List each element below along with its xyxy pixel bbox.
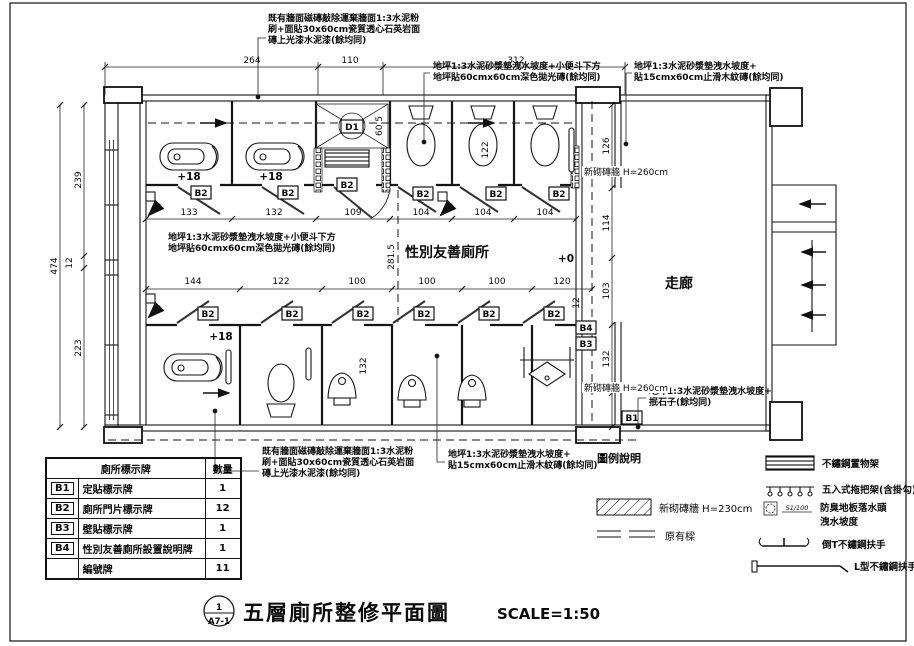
tag-b2-label: B2 <box>489 190 502 200</box>
sign-table-header-name: 廁所標示牌 <box>46 458 205 479</box>
level-mark: +0 <box>558 253 574 265</box>
room-label-corridor: 走廊 <box>665 275 693 292</box>
legend-title: 圖例說明 <box>597 451 641 465</box>
dim-stall: 100 <box>418 277 435 287</box>
table-row: B1 定貼標示牌 1 <box>46 479 241 499</box>
dim-top-110: 110 <box>341 56 358 66</box>
dim-right: 103 <box>602 282 612 299</box>
sign-qty: 1 <box>205 519 241 539</box>
tag-b2-label: B2 <box>340 181 353 191</box>
tag-b2-label: B2 <box>552 190 565 200</box>
sign-qty: 11 <box>205 559 241 580</box>
sign-name: 性別友善廁所設置說明牌 <box>78 539 205 559</box>
l-grab-bar-symbol <box>752 561 848 572</box>
dim-misc: 60.5 <box>375 116 385 136</box>
dim-left-474: 474 <box>50 257 60 274</box>
tag-b3: B3 <box>51 522 74 535</box>
dim-left-239: 239 <box>74 171 84 188</box>
note-floor-dark: 地坪貼60cmx60cm深色拋光磚(餘均同) <box>433 71 601 83</box>
dim-stall: 100 <box>348 277 365 287</box>
dim-misc: 281.5 <box>387 244 397 270</box>
grab-bar <box>226 350 231 384</box>
tag-b2-label: B2 <box>201 310 214 320</box>
legend-beam-label: 原有樑 <box>665 530 695 543</box>
level-mark: +18 <box>209 331 232 343</box>
t-grab-bar-symbol <box>759 538 809 546</box>
tag-b2: B2 <box>51 502 74 515</box>
toilet-symbol <box>267 364 295 417</box>
sign-qty: 12 <box>205 499 241 519</box>
dim-misc: 132 <box>359 357 369 374</box>
dim-right: 114 <box>602 214 612 231</box>
legend-mop-rack-label: 五入式拖把架(含掛勾) <box>822 484 914 496</box>
note-wall-spec: 刷+面貼30x60cm瓷質透心石英岩面 <box>268 23 420 35</box>
stainless-shelf-symbol <box>325 150 369 167</box>
note-floor-dark: 地坪1:3水泥砂漿墊洩水坡度+小便斗下方 <box>433 60 601 72</box>
tag-b2-label: B2 <box>356 310 369 320</box>
tag-b4: B4 <box>51 542 74 555</box>
dim-stall: 100 <box>488 277 505 287</box>
tag-b3: B3 <box>576 337 596 350</box>
note-floor-dark: 地坪貼60cmx60cm深色拋光磚(餘均同) <box>168 242 336 254</box>
sign-name: 壁貼標示牌 <box>78 519 205 539</box>
tag-b2-label: B2 <box>547 310 560 320</box>
table-row: B2 廁所門片標示牌 12 <box>46 499 241 519</box>
tag-b4: B4 <box>576 321 596 334</box>
basin-symbol <box>328 373 356 405</box>
dim-misc: 122 <box>481 141 491 158</box>
toilet-symbol <box>407 106 435 166</box>
level-mark: +18 <box>259 171 282 183</box>
note-wall-spec: 磚上光漆水泥漆(餘均同) <box>268 34 366 46</box>
level-mark: +18 <box>177 171 200 183</box>
balcony-railing <box>772 185 836 345</box>
tag-d1-label: D1 <box>345 123 359 133</box>
dim-stall: 120 <box>553 277 570 287</box>
detail-number: 1 <box>216 603 222 613</box>
sign-schedule-table: 廁所標示牌 數量 B1 定貼標示牌 1 B2 廁所門片標示牌 12 B3 壁貼標… <box>45 457 242 580</box>
basin-symbol <box>398 375 426 407</box>
legend-t-grab-label: 倒T不鏽鋼扶手 <box>821 539 886 551</box>
dim-right: 132 <box>602 350 612 367</box>
toilet-symbol <box>531 106 559 166</box>
note-floor-wood: 貼15cmx60cm止滑木紋磚(餘均同) <box>447 459 598 471</box>
dim-stall: 133 <box>180 208 197 218</box>
mop-sink-symbol <box>520 347 574 386</box>
tag-b4-label: B4 <box>579 324 592 334</box>
table-row: 編號牌 11 <box>46 559 241 580</box>
note-wall-spec: 既有牆面磁磚敲除運棄牆面1:3水泥粉 <box>268 12 419 24</box>
dim-misc: 12 <box>572 297 582 308</box>
dim-stall: 104 <box>536 208 553 218</box>
title-block: 1 A7-1 五層廁所整修平面圖 SCALE=1:50 <box>204 596 600 627</box>
tag-b1: B1 <box>51 482 74 495</box>
legend-drain-label: 防臭地板落水頭 <box>820 502 887 514</box>
sign-table-header-qty: 數量 <box>205 458 241 479</box>
dim-stall: 144 <box>184 277 201 287</box>
tag-b2-label: B2 <box>417 310 430 320</box>
dim-stall: 132 <box>265 208 282 218</box>
dim-left-12: 12 <box>65 257 75 268</box>
note-new-wall-260: 新砌磚牆 H=260cm <box>584 166 668 178</box>
tag-b2-label: B2 <box>194 189 207 199</box>
legend-shelf-label: 不鏽鋼置物架 <box>822 458 880 470</box>
new-wall-hatch-swatch <box>597 499 651 515</box>
grab-bar <box>569 128 574 172</box>
dim-stall: 109 <box>344 208 361 218</box>
sign-name: 編號牌 <box>78 559 205 580</box>
legend-new-wall-label: 新砌磚牆 H=230cm <box>659 502 752 515</box>
note-floor-wood: 地坪1:3水泥砂漿墊洩水坡度+ <box>634 60 757 72</box>
note-floor-wood: 地坪1:3水泥砂漿墊洩水坡度+ <box>448 448 571 460</box>
tag-b3-label: B3 <box>579 340 592 350</box>
dim-left-223: 223 <box>74 339 84 356</box>
drawing-scale: SCALE=1:50 <box>497 605 600 623</box>
drawing-title: 五層廁所整修平面圖 <box>243 601 450 625</box>
shelf-swatch <box>766 456 814 470</box>
sheet-reference: A7-1 <box>208 617 230 627</box>
sign-name: 定貼標示牌 <box>78 479 205 499</box>
dim-stall: 122 <box>272 277 289 287</box>
note-wall-spec: 既有牆面磁磚敲除運棄牆面1:3水泥粉 <box>262 445 413 457</box>
grab-bar <box>306 348 311 380</box>
legend: 圖例說明 新砌磚牆 H=230cm 原有樑 不鏽鋼置物架 五入式拖把架(含掛勾)… <box>597 451 914 573</box>
sign-name: 廁所門片標示牌 <box>78 499 205 519</box>
note-new-wall-260: 新砌磚牆 H=260cm <box>584 382 668 394</box>
table-row: B3 壁貼標示牌 1 <box>46 519 241 539</box>
legend-drain-label2: 洩水坡度 <box>820 516 859 528</box>
tag-b2-label: B2 <box>281 189 294 199</box>
door-swings <box>177 187 560 323</box>
note-floor-wood: 貼15cmx60cm止滑木紋磚(餘均同) <box>633 71 784 83</box>
legend-slope-code: S1/100 <box>786 504 809 512</box>
note-wall-spec: 磚上光漆水泥漆(餘均同) <box>262 467 360 479</box>
tag-b2-label: B2 <box>285 310 298 320</box>
table-row: B4 性別友善廁所設置說明牌 1 <box>46 539 241 559</box>
note-floor-pebble: 抿石子(餘均同) <box>649 396 711 408</box>
note-floor-dark: 地坪1:3水泥砂漿墊洩水坡度+小便斗下方 <box>168 231 336 243</box>
sign-qty: 1 <box>205 539 241 559</box>
mop-rack-symbol <box>766 487 814 496</box>
dim-stall: 104 <box>474 208 491 218</box>
tag-b1-label: B1 <box>625 414 638 424</box>
fixtures <box>146 104 836 417</box>
legend-l-grab-label: L型不鏽鋼扶手 <box>854 561 914 573</box>
room-label-gender-friendly: 性別友善廁所 <box>405 244 489 261</box>
tag-b1: B1 <box>622 411 642 424</box>
note-wall-spec: 刷+面貼30x60cm瓷質透心石英岩面 <box>262 456 414 468</box>
drawing-sheet: { "title_block": { "detail_no": "1", "sh… <box>0 0 914 646</box>
tag-b2-label: B2 <box>482 310 495 320</box>
dim-stall: 104 <box>412 208 429 218</box>
sign-qty: 1 <box>205 479 241 499</box>
dim-right: 126 <box>602 137 612 154</box>
squat-toilet-symbol <box>164 354 222 381</box>
tag-b2-label: B2 <box>416 190 429 200</box>
tag-d1: D1 <box>341 120 363 133</box>
